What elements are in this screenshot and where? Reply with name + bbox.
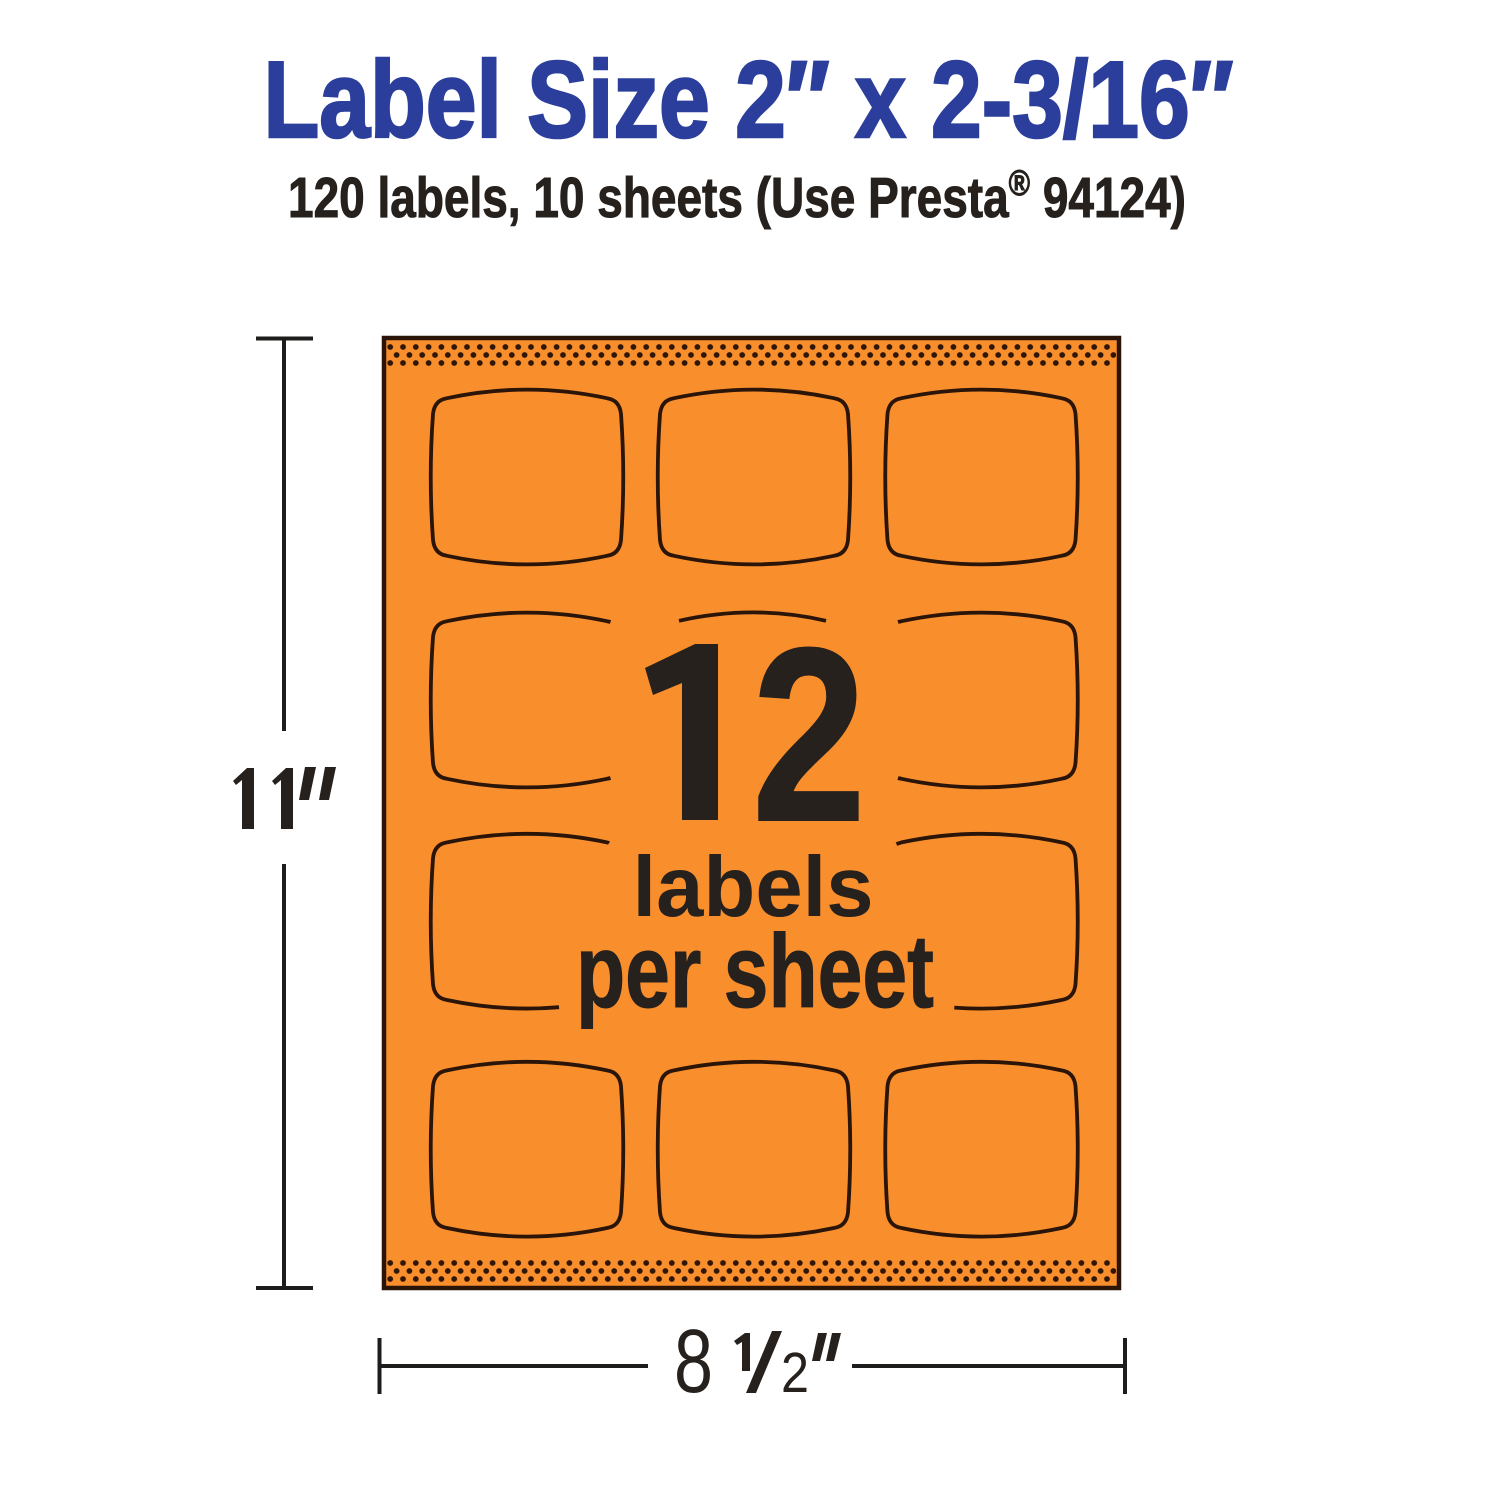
svg-text:per sheet: per sheet (576, 914, 934, 1030)
svg-text:120 labels, 10 sheets (Use Pre: 120 labels, 10 sheets (Use Presta® 94124… (288, 162, 1186, 230)
svg-text:2: 2 (781, 1341, 809, 1405)
svg-text:Label Size 2″ x 2-3/16″: Label Size 2″ x 2-3/16″ (264, 39, 1234, 161)
svg-text:8: 8 (674, 1312, 713, 1412)
svg-text:2: 2 (752, 597, 866, 873)
